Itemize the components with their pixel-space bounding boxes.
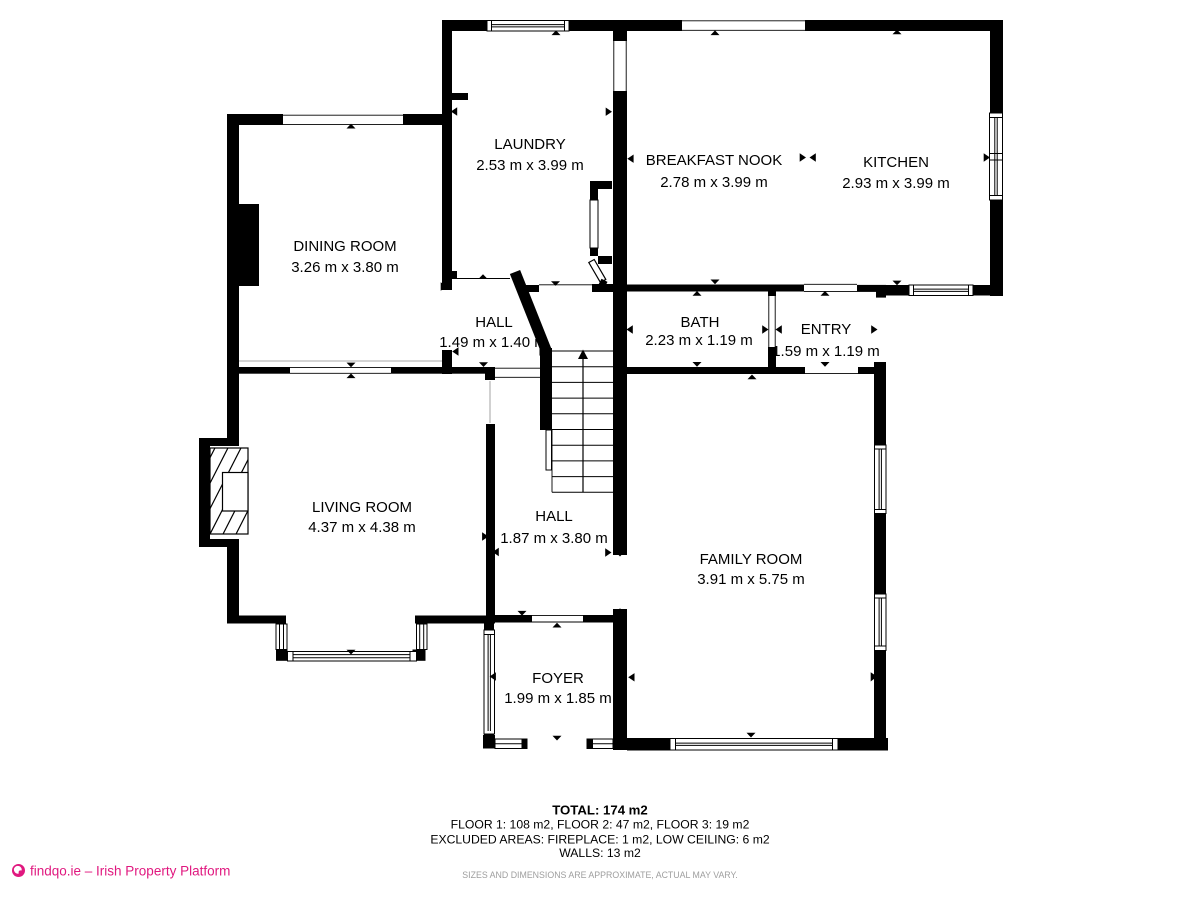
svg-text:3.91 m x 5.75 m: 3.91 m x 5.75 m [697, 571, 805, 588]
svg-text:LIVING ROOM: LIVING ROOM [312, 499, 412, 516]
svg-text:DINING ROOM: DINING ROOM [293, 238, 396, 255]
svg-text:HALL: HALL [535, 508, 573, 525]
svg-text:SIZES AND DIMENSIONS ARE APPRO: SIZES AND DIMENSIONS ARE APPROXIMATE, AC… [462, 870, 737, 880]
svg-text:FLOOR 1: 108 m2, FLOOR 2: 47 m: FLOOR 1: 108 m2, FLOOR 2: 47 m2, FLOOR 3… [451, 818, 750, 832]
svg-text:WALLS: 13 m2: WALLS: 13 m2 [559, 846, 641, 860]
svg-text:3.26 m x 3.80 m: 3.26 m x 3.80 m [291, 259, 399, 276]
svg-text:FOYER: FOYER [532, 670, 584, 687]
svg-text:2.78 m x 3.99 m: 2.78 m x 3.99 m [660, 174, 768, 191]
svg-text:EXCLUDED AREAS: FIREPLACE: 1 m: EXCLUDED AREAS: FIREPLACE: 1 m2, LOW CEI… [430, 832, 770, 846]
svg-text:findqo.ie – Irish Property Pla: findqo.ie – Irish Property Platform [30, 864, 230, 879]
svg-text:BREAKFAST NOOK: BREAKFAST NOOK [646, 152, 782, 169]
svg-text:1.49 m x 1.40 m: 1.49 m x 1.40 m [439, 334, 547, 351]
svg-text:BATH: BATH [681, 314, 720, 331]
svg-text:HALL: HALL [475, 314, 513, 331]
svg-text:2.53 m x 3.99 m: 2.53 m x 3.99 m [476, 157, 584, 174]
svg-text:FAMILY ROOM: FAMILY ROOM [700, 551, 803, 568]
svg-text:KITCHEN: KITCHEN [863, 154, 929, 171]
svg-text:1.99 m x 1.85 m: 1.99 m x 1.85 m [504, 690, 612, 707]
svg-text:4.37 m x 4.38 m: 4.37 m x 4.38 m [308, 519, 416, 536]
svg-text:1.59 m x 1.19 m: 1.59 m x 1.19 m [772, 343, 880, 360]
svg-text:2.23 m x 1.19 m: 2.23 m x 1.19 m [645, 332, 753, 349]
svg-text:LAUNDRY: LAUNDRY [494, 136, 565, 153]
svg-text:ENTRY: ENTRY [801, 321, 852, 338]
svg-text:TOTAL: 174 m2: TOTAL: 174 m2 [552, 803, 648, 818]
svg-text:1.87 m x 3.80 m: 1.87 m x 3.80 m [500, 530, 608, 547]
svg-text:2.93 m x 3.99 m: 2.93 m x 3.99 m [842, 175, 950, 192]
